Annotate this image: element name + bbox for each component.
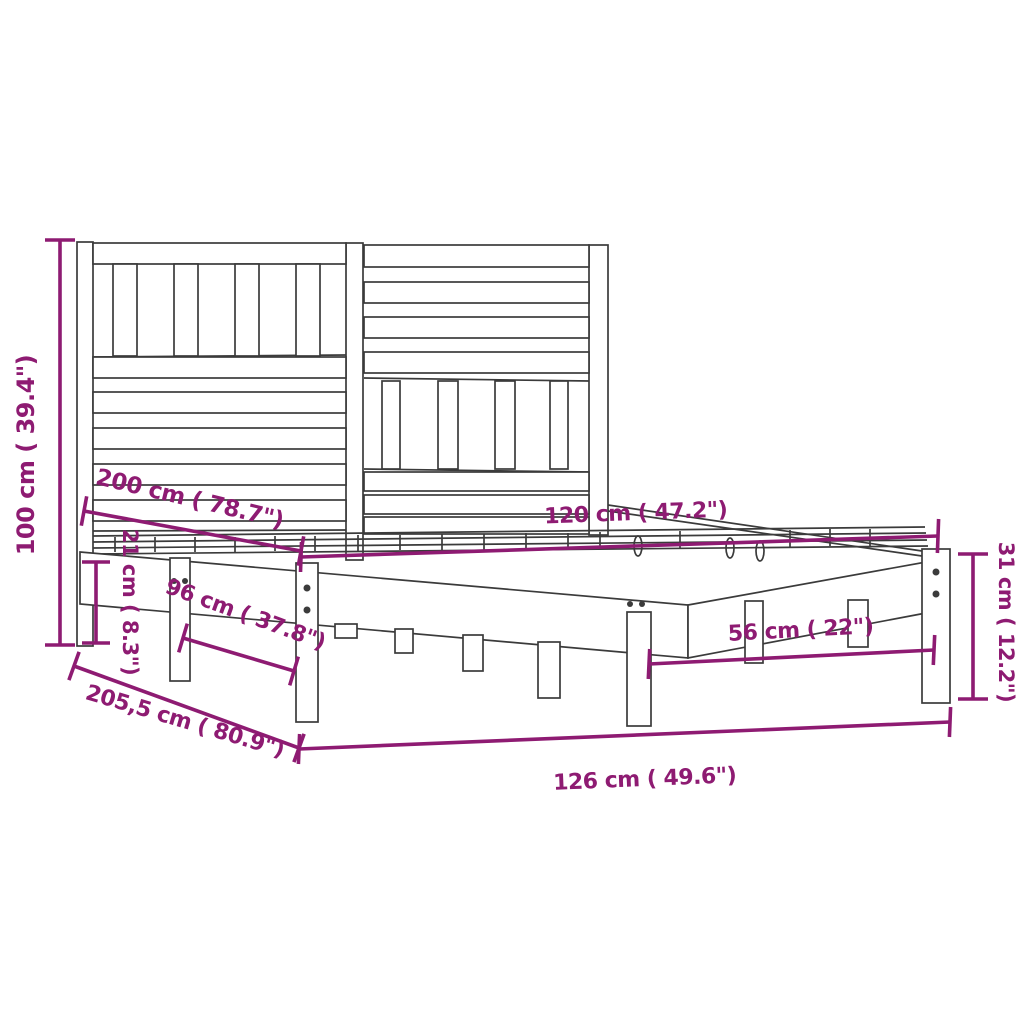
headboard-post-right	[589, 245, 608, 535]
dimension-label-headboard-height: 100 cm ( 39.4")	[12, 355, 40, 556]
dimension-label-frame-total-width: 126 cm ( 49.6")	[553, 763, 737, 796]
headboard-post-center	[346, 243, 363, 560]
slat-deck	[93, 527, 928, 561]
bed-frame-dimension-diagram: 100 cm ( 39.4") 21 cm ( 8.3") 200 cm ( 7…	[0, 0, 1024, 1024]
dimension-label-frame-total-length: 205,5 cm ( 80.9")	[83, 681, 288, 763]
dimension-frame-total-width	[298, 707, 950, 764]
dimension-side-rail-height	[958, 554, 988, 699]
dimension-label-side-rail-height: 31 cm ( 12.2")	[994, 542, 1018, 702]
diagram-canvas: 100 cm ( 39.4") 21 cm ( 8.3") 200 cm ( 7…	[0, 0, 1024, 1024]
dimension-label-underbed-clearance: 21 cm ( 8.3")	[118, 529, 142, 675]
bed-drawing	[77, 242, 950, 726]
foot-end-rail	[688, 562, 926, 658]
support-leg	[538, 642, 560, 698]
dimension-headboard-height	[45, 240, 75, 645]
headboard-right-panel	[364, 245, 589, 534]
support-leg	[335, 624, 357, 638]
slat-strap-loop	[756, 541, 764, 561]
support-leg	[395, 629, 413, 653]
support-leg	[463, 635, 483, 671]
